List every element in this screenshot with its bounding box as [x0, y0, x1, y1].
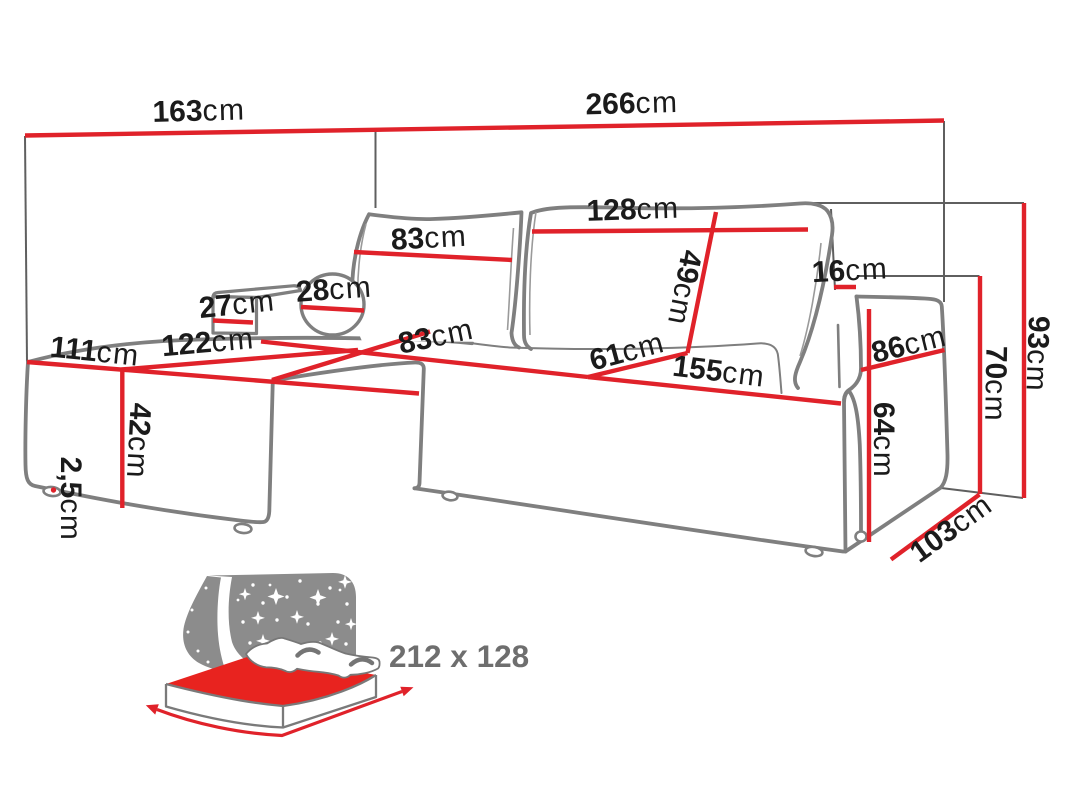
svg-text:42cm: 42cm [120, 402, 157, 480]
svg-text:16cm: 16cm [811, 252, 889, 289]
svg-text:28cm: 28cm [295, 271, 373, 309]
svg-text:212 x 128: 212 x 128 [389, 638, 529, 674]
svg-text:128cm: 128cm [586, 192, 680, 228]
svg-text:163cm: 163cm [152, 93, 246, 128]
svg-text:83cm: 83cm [390, 220, 468, 257]
svg-text:266cm: 266cm [585, 86, 679, 121]
svg-text:70cm: 70cm [978, 346, 1012, 423]
svg-text:93cm: 93cm [1019, 315, 1055, 392]
svg-text:64cm: 64cm [867, 402, 900, 478]
svg-text:2,5cm: 2,5cm [54, 457, 87, 542]
